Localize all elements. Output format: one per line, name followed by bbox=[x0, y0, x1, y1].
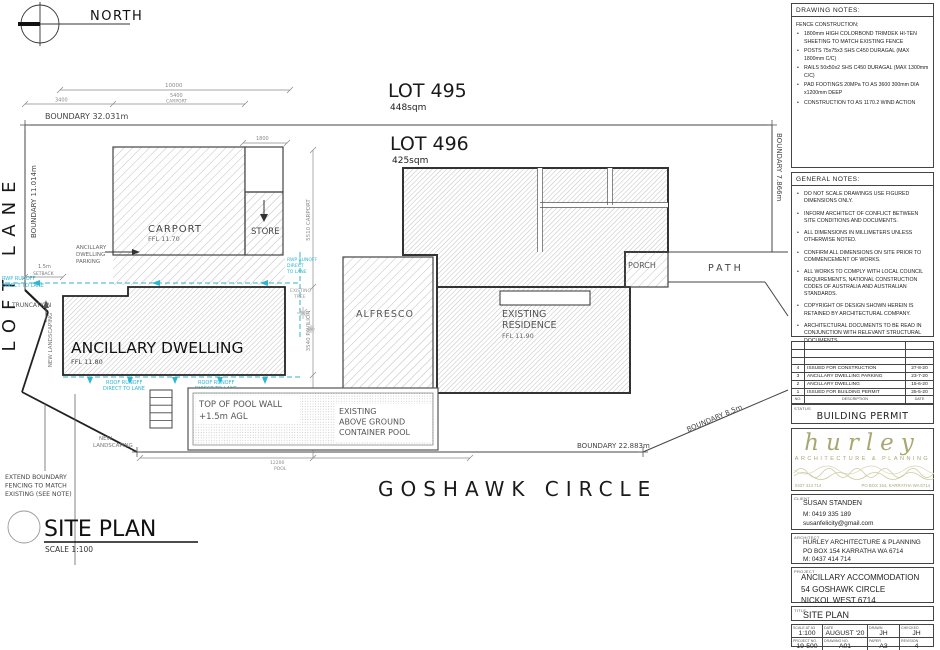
extend-fence-note-3: EXISTING (SEE NOTE) bbox=[5, 491, 72, 498]
alfresco: ALFRESCO bbox=[343, 257, 433, 392]
pool-label-1: EXISTING bbox=[339, 407, 376, 416]
extend-fence-note-1: EXTEND BOUNDARY bbox=[5, 474, 67, 481]
revision-row: 1ISSUED FOR BUILDING PERMIT25-5-20 bbox=[792, 389, 933, 397]
architect-phone: M: 0437 414 714 bbox=[803, 556, 930, 565]
north-arrow: NORTH bbox=[18, 2, 143, 46]
rwp-note-1b: DIRECT TO LANE bbox=[2, 283, 44, 289]
revision-table: 4ISSUED FOR CONSTRUCTION27-8-20 3ANCILLA… bbox=[791, 341, 934, 404]
general-note-item: ALL WORKS TO COMPLY WITH LOCAL COUNCIL R… bbox=[796, 269, 929, 298]
revision-row: 3ANCILLARY DWELLING PARKING23-7-20 bbox=[792, 373, 933, 381]
carport-label: CARPORT bbox=[148, 224, 202, 235]
pool-label-2: ABOVE GROUND bbox=[339, 418, 405, 427]
status-value: BUILDING PERMIT bbox=[792, 405, 933, 422]
revision-row bbox=[792, 358, 933, 366]
drawing-note-item: CONSTRUCTION TO AS 1170.2 WIND ACTION bbox=[796, 100, 929, 107]
general-note-item: DO NOT SCALE DRAWINGS USE FIGURED DIMENS… bbox=[796, 191, 929, 206]
drawing-note-item: RAILS 50x50x2 SHS C450 DURAGAL (MAX 1300… bbox=[796, 65, 929, 80]
architect-label: ARCHITECT bbox=[794, 535, 820, 540]
path-label: PATH bbox=[708, 263, 744, 274]
rwp-note-2b: DIRECT bbox=[287, 263, 304, 269]
general-note-item: ALL DIMENSIONS IN MILLIMETERS UNLESS OTH… bbox=[796, 230, 929, 245]
sheet-title-value: SITE PLAN bbox=[792, 607, 933, 620]
rwp-note-2c: TO LANE bbox=[286, 269, 307, 275]
architect-box: ARCHITECT HURLEY ARCHITECTURE & PLANNING… bbox=[791, 533, 934, 564]
container-pool: TOP OF POOL WALL +1.5m AGL EXISTING ABOV… bbox=[188, 388, 438, 450]
store: STORE bbox=[245, 147, 283, 255]
logo-phone: 0437 414 714 bbox=[795, 483, 821, 488]
general-note-item: COPYRIGHT OF DESIGN SHOWN HEREIN IS RETA… bbox=[796, 303, 929, 318]
status-box: STATUS BUILDING PERMIT bbox=[791, 404, 934, 424]
drawing-notes-header: DRAWING NOTES: bbox=[792, 4, 933, 17]
new-landscaping-2b: LANDSCAPING bbox=[93, 443, 133, 449]
stairs bbox=[150, 390, 172, 428]
drawing-notes-box: DRAWING NOTES: FENCE CONSTRUCTION; 1800m… bbox=[791, 3, 934, 168]
ancillary-dwelling: ANCILLARY DWELLING FFL 11.80 bbox=[63, 287, 285, 375]
dim-pool-word: POOL bbox=[274, 466, 287, 472]
drawing-note-item: 1800mm HIGH COLORBOND TRIMDEK HI-TEN SHE… bbox=[796, 31, 929, 46]
carport: CARPORT FFL 11.70 bbox=[113, 147, 245, 255]
new-landscaping-2a: NEW bbox=[99, 436, 113, 442]
lot496-area: 425sqm bbox=[392, 156, 428, 166]
checked-cell: CHECKEDJH bbox=[900, 625, 933, 637]
parking-note-2: DWELLING bbox=[76, 252, 105, 258]
date-cell: DATEAUGUST '20 bbox=[823, 625, 868, 637]
residence-label-1: EXISTING bbox=[502, 309, 546, 320]
porch-label: PORCH bbox=[628, 261, 656, 270]
roof-runoff-1b: DIRECT TO LANE bbox=[103, 386, 145, 392]
logo-contour-art bbox=[794, 461, 934, 481]
alfresco-label: ALFRESCO bbox=[356, 309, 414, 320]
site-plan-sheet: NORTH 10000 5400 CARPORT 3400 BOUNDARY 3… bbox=[0, 0, 940, 650]
sheet-title-label: TITLE bbox=[794, 608, 806, 613]
client-email: susanfelicity@gmail.com bbox=[803, 519, 930, 529]
drawing-no-cell: DRAWING NO.A01 bbox=[823, 638, 868, 650]
dim-5510: 5510 CARPORT bbox=[306, 199, 312, 241]
boundary-bottom-label: BOUNDARY 22.883m bbox=[577, 442, 650, 450]
porch: PORCH bbox=[625, 252, 668, 287]
project-box: PROJECT ANCILLARY ACCOMMODATION 54 GOSHA… bbox=[791, 567, 934, 603]
dim-5400: 5400 bbox=[170, 93, 183, 99]
title-block: DRAWING NOTES: FENCE CONSTRUCTION; 1800m… bbox=[791, 0, 935, 650]
lot495-area: 448sqm bbox=[390, 103, 426, 113]
general-note-item: INFORM ARCHITECT OF CONFLICT BETWEEN SIT… bbox=[796, 211, 929, 226]
parking-note-1: ANCILLARY bbox=[76, 245, 107, 251]
drawing-title-scale: SCALE 1:100 bbox=[45, 545, 93, 554]
pool-dimension bbox=[137, 455, 473, 461]
project-no-cell: PROJECT NO.19-500 bbox=[792, 638, 823, 650]
site-plan-drawing: NORTH 10000 5400 CARPORT 3400 BOUNDARY 3… bbox=[0, 0, 790, 650]
sheet-title-box: TITLE SITE PLAN bbox=[791, 606, 934, 621]
dwelling-label: ANCILLARY DWELLING bbox=[71, 339, 244, 357]
general-note-item: CONFIRM ALL DIMENSIONS ON SITE PRIOR TO … bbox=[796, 250, 929, 265]
dim-5400-word: CARPORT bbox=[166, 99, 187, 105]
setback-dim: 1.5m bbox=[38, 264, 51, 270]
logo-wordmark: hurley bbox=[792, 429, 933, 455]
dim-10000: 10000 bbox=[165, 83, 183, 89]
project-label: PROJECT bbox=[794, 569, 815, 574]
scale-cell: SCALE AT A31:100 bbox=[792, 625, 823, 637]
client-box: CLIENT SUSAN STANDEN M: 0419 335 189 sus… bbox=[791, 494, 934, 530]
setback-word: SETBACK bbox=[33, 271, 55, 277]
carport-ffl: FFL 11.70 bbox=[148, 235, 180, 243]
boundary-left-label: BOUNDARY 11.014m bbox=[30, 165, 38, 238]
revision-row bbox=[792, 350, 933, 358]
drawing-note-item: PAD FOOTINGS 20MPa TO AS 3600 300mm DIA … bbox=[796, 82, 929, 97]
residence-ffl: FFL 11.90 bbox=[502, 332, 534, 340]
project-address-1: 54 GOSHAWK CIRCLE bbox=[801, 584, 930, 596]
dwelling-ffl: FFL 11.80 bbox=[71, 358, 103, 366]
revision-cell: REVISION4 bbox=[900, 638, 933, 650]
pool-wall-note-1: TOP OF POOL WALL bbox=[198, 400, 282, 410]
client-name: SUSAN STANDEN bbox=[803, 499, 930, 510]
extend-fence-note-2: FENCING TO MATCH bbox=[5, 483, 67, 490]
store-label: STORE bbox=[251, 227, 280, 237]
general-notes-header: GENERAL NOTES: bbox=[792, 173, 933, 186]
drawing-title-label: SITE PLAN bbox=[44, 517, 156, 542]
dim-3400: 3400 bbox=[55, 98, 68, 104]
boundary-diag-label: BOUNDARY 8.5m bbox=[686, 403, 744, 434]
sheet-info-grid: SCALE AT A31:100 DATEAUGUST '20 DRAWNJH … bbox=[791, 624, 934, 647]
rwp-note-2a: RWP RUNOFF bbox=[287, 257, 317, 263]
residence-label-2: RESIDENCE bbox=[502, 320, 557, 331]
status-label: STATUS bbox=[794, 406, 811, 411]
dim-12200: 12200 bbox=[270, 460, 284, 466]
client-phone: M: 0419 335 189 bbox=[803, 510, 930, 520]
project-name: ANCILLARY ACCOMMODATION bbox=[801, 572, 930, 584]
architect-address: PO BOX 154 KARRATHA WA 6714 bbox=[803, 548, 930, 557]
drawing-title: SITE PLAN SCALE 1:100 bbox=[8, 511, 198, 554]
general-notes-box: GENERAL NOTES: DO NOT SCALE DRAWINGS USE… bbox=[791, 172, 934, 337]
lot495-label: LOT 495 bbox=[388, 80, 467, 102]
drawn-cell: DRAWNJH bbox=[868, 625, 900, 637]
tree-note-2: TREE bbox=[293, 294, 306, 300]
boundary-top-label: BOUNDARY 32.031m bbox=[45, 112, 128, 121]
parking-note-3: PARKING bbox=[76, 259, 100, 265]
drawing-note-item: POSTS 75x75x3 SHS C450 DURAGAL (MAX 1800… bbox=[796, 48, 929, 63]
path: PATH bbox=[668, 252, 788, 316]
dim-1800: 1800 bbox=[256, 136, 269, 142]
lot496-label: LOT 496 bbox=[390, 133, 469, 155]
north-label: NORTH bbox=[90, 9, 143, 24]
tree-note-1: EXISTING bbox=[290, 288, 312, 294]
pool-wall-note-2: +1.5m AGL bbox=[199, 412, 248, 422]
fence-construction-intro: FENCE CONSTRUCTION; bbox=[796, 22, 929, 29]
lane-label: LOFT LANE bbox=[0, 173, 20, 352]
revision-row: 2ANCILLARY DWELLING15-6-20 bbox=[792, 381, 933, 389]
revision-row: 4ISSUED FOR CONSTRUCTION27-8-20 bbox=[792, 365, 933, 373]
revision-row bbox=[792, 342, 933, 350]
parking-area bbox=[113, 253, 285, 285]
architect-name: HURLEY ARCHITECTURE & PLANNING bbox=[803, 539, 930, 548]
logo-box: hurley ARCHITECTURE & PLANNING 0437 414 … bbox=[791, 428, 934, 491]
logo-address: PO BOX 154, KARRATHA WA 6714 bbox=[861, 483, 930, 488]
paper-cell: PAPERA3 bbox=[868, 638, 900, 650]
street-label: GOSHAWK CIRCLE bbox=[378, 477, 657, 501]
client-label: CLIENT bbox=[794, 496, 810, 501]
boundary-right-label: BOUNDARY 7.866m bbox=[775, 133, 783, 202]
revision-header-row: NO.DESCRIPTIONDATE bbox=[792, 396, 933, 403]
new-landscaping-1: NEW LANDSCAPING bbox=[48, 313, 54, 368]
pool-label-3: CONTAINER POOL bbox=[339, 428, 411, 437]
